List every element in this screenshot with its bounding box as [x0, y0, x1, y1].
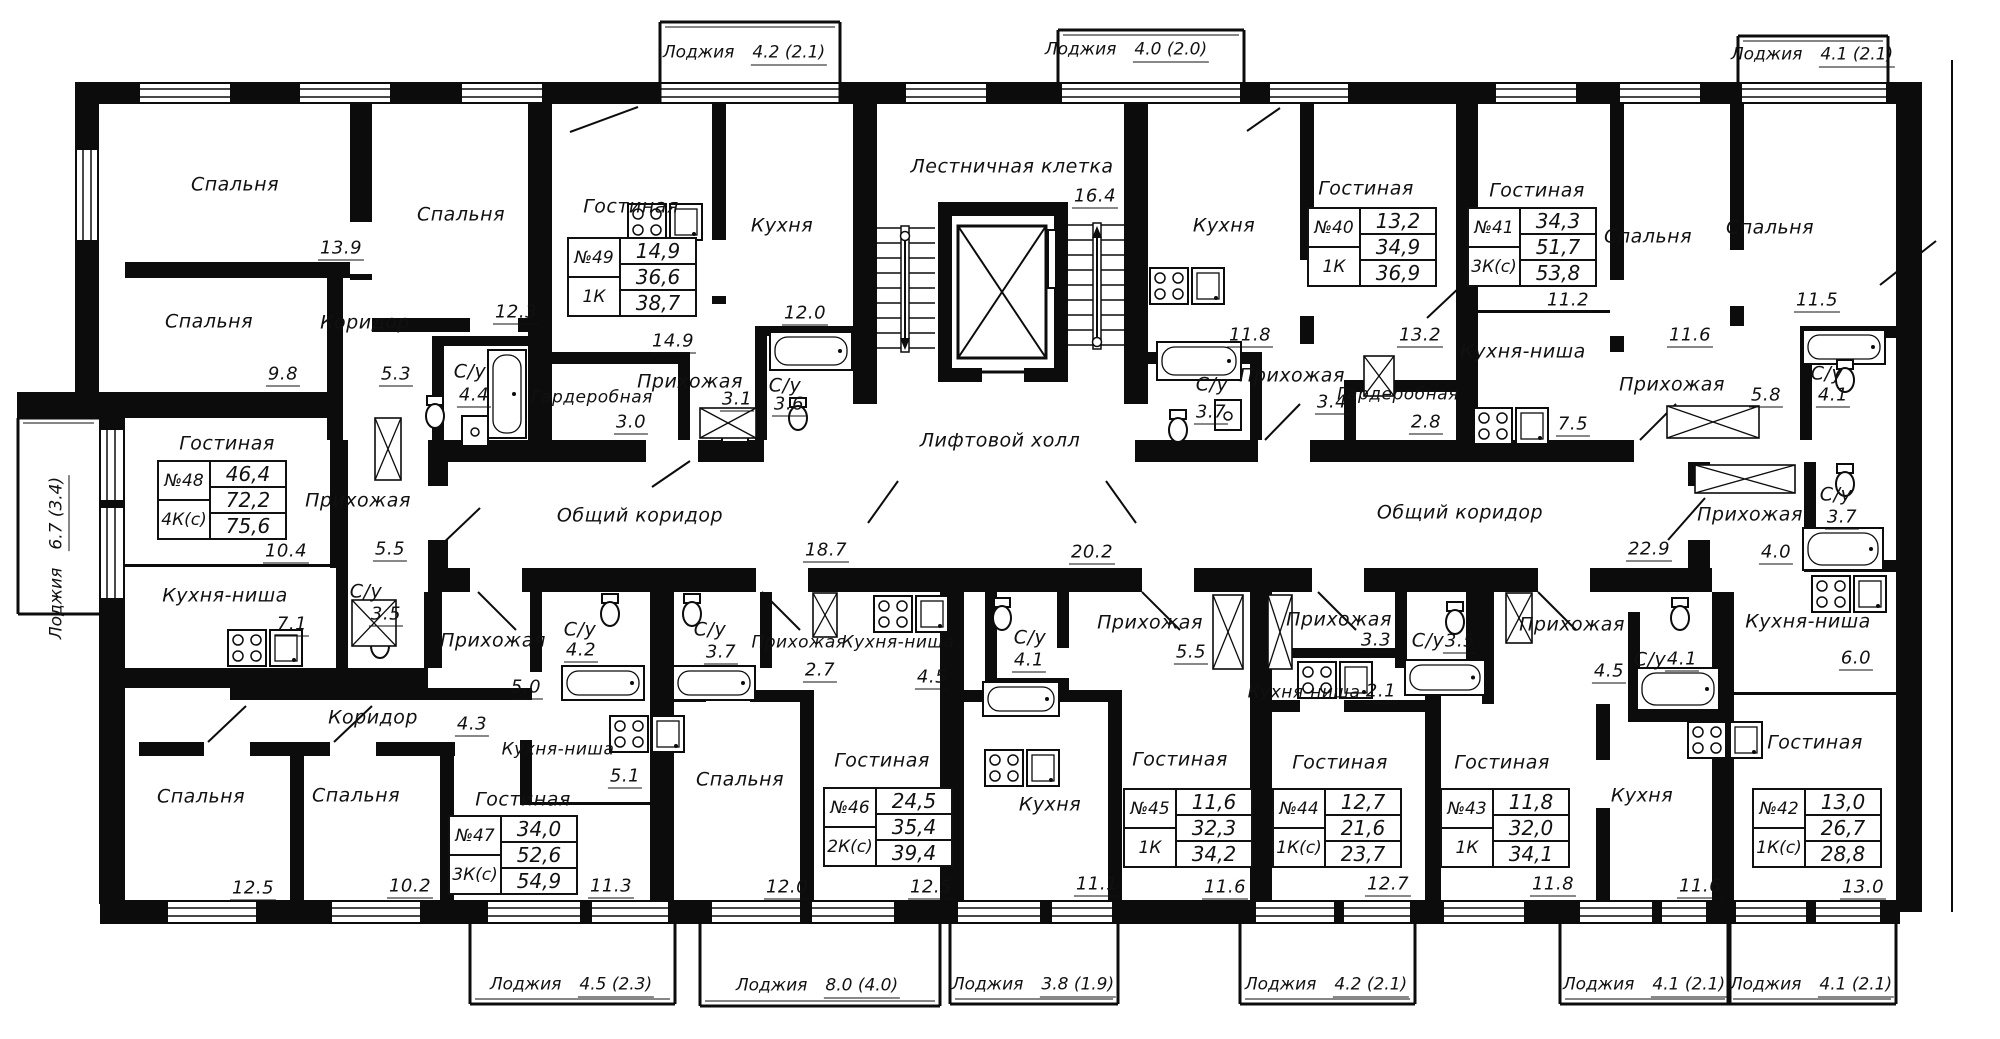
living-area: 34,0 [502, 817, 576, 843]
room-area: 13.9 [318, 240, 364, 261]
apartment-type: 4К(с) [159, 501, 209, 538]
room-area: 7.1 [275, 616, 309, 637]
room-area: 13.0 [1840, 879, 1886, 900]
apartment-spec-table: №413К(с)34,351,753,8 [1467, 207, 1597, 287]
room-label: Кухня-ниша [162, 587, 288, 606]
loggia-name: Лоджия [736, 976, 808, 996]
room-label: Спальня [696, 771, 784, 790]
room-area: 11.6 [1202, 879, 1248, 900]
apartment-number: №46 [825, 789, 875, 828]
room-area: 3.3 [1359, 632, 1393, 653]
loggia-label: Лоджия4.1 (2.1) [1730, 975, 1894, 998]
total-area-with-loggia: 36,9 [1361, 261, 1435, 285]
loggia-area: 8.0 (4.0) [823, 976, 900, 999]
room-label: Прихожая [1697, 506, 1803, 525]
room-area: 4.4 [457, 387, 491, 408]
room-label: Лестничная клетка [910, 158, 1113, 177]
living-area: 34,3 [1521, 209, 1595, 235]
room-area: 11.8 [1530, 876, 1576, 897]
room-area: 5.5 [373, 541, 407, 562]
apartment-type: 1К [1125, 829, 1175, 866]
total-area: 32,0 [1494, 816, 1568, 842]
room-area: 12.5 [908, 879, 954, 900]
living-area: 46,4 [211, 462, 285, 488]
room-label: Коридор [328, 709, 418, 728]
room-area: 4.3 [455, 716, 489, 737]
loggia-area: 4.0 (2.0) [1132, 40, 1209, 63]
room-label: Общий коридор [557, 507, 723, 526]
room-area: 4.5 [915, 669, 949, 690]
loggia-label: Лоджия8.0 (4.0) [736, 976, 900, 999]
loggia-area: 4.2 (2.1) [1332, 975, 1409, 998]
total-area-with-loggia: 28,8 [1806, 842, 1880, 866]
total-area-with-loggia: 38,7 [621, 291, 695, 315]
room-label: Спальня [157, 788, 245, 807]
apartment-number: №48 [159, 462, 209, 501]
room-area: 4.1 [1665, 651, 1699, 672]
loggia-area: 4.2 (2.1) [750, 43, 827, 66]
room-area: 11.1 [1074, 876, 1120, 897]
room-area: 4.1 [1816, 387, 1850, 408]
room-label: С/у [1811, 365, 1843, 384]
apartment-type: 1К [569, 278, 619, 315]
apartment-number: №41 [1469, 209, 1519, 248]
room-area: 4.2 [564, 642, 598, 663]
apartment-spec-table: №491К14,936,638,7 [567, 237, 697, 317]
room-label: Кухня-ниша [502, 742, 615, 759]
room-area: 16.4 [1072, 188, 1118, 209]
room-label: Гостиная [834, 752, 930, 771]
room-label: Гостиная [1318, 180, 1414, 199]
living-area: 11,8 [1494, 790, 1568, 816]
total-area-with-loggia: 39,4 [877, 841, 951, 865]
room-area: 9.8 [266, 366, 300, 387]
room-label: Кухня [1611, 787, 1673, 806]
living-area: 14,9 [621, 239, 695, 265]
room-area: 10.4 [263, 543, 309, 564]
room-area: 11.6 [1667, 327, 1713, 348]
total-area: 35,4 [877, 815, 951, 841]
total-area: 51,7 [1521, 235, 1595, 261]
room-area: 5.0 [509, 679, 543, 700]
room-area: 3.7 [1194, 404, 1228, 425]
room-area: 12.0 [782, 305, 828, 326]
room-area: 12.5 [230, 880, 276, 901]
room-area: 5.3 [379, 366, 413, 387]
room-area: 3.7 [704, 644, 738, 665]
room-area: 4.0 [1759, 544, 1793, 565]
room-label: Прихожая [1519, 616, 1625, 635]
loggia-label: Лоджия6.7 (3.4) [47, 475, 70, 639]
room-label: Гостиная [583, 198, 679, 217]
room-area: 2.7 [803, 662, 837, 683]
loggia-name: Лоджия [1563, 975, 1635, 995]
room-label: Спальня [417, 206, 505, 225]
room-label: С/у [454, 363, 486, 382]
floor-plan: Лестничная клетка16.4Лифтовой холл20.2Об… [0, 0, 2000, 1039]
room-label: Лифтовой холл [920, 432, 1080, 451]
room-label: Кухня-ниша [1745, 613, 1871, 632]
room-label: С/у [1634, 651, 1666, 670]
room-area: 3.1 [720, 391, 754, 412]
total-area: 21,6 [1326, 816, 1400, 842]
loggia-area: 4.1 (2.1) [1818, 45, 1895, 68]
apartment-spec-table: №473К(с)34,052,654,9 [448, 815, 578, 895]
loggia-label: Лоджия4.2 (2.1) [663, 43, 827, 66]
room-label: Прихожая [440, 632, 546, 651]
room-area: 6.0 [1839, 650, 1873, 671]
room-label: Кухня-ниша [1460, 343, 1586, 362]
room-area: 13.2 [1397, 327, 1443, 348]
apartment-spec-table: №462К(с)24,535,439,4 [823, 787, 953, 867]
apartment-number: №45 [1125, 790, 1175, 829]
room-label: Спальня [1604, 228, 1692, 247]
loggia-name: Лоджия [1245, 975, 1317, 995]
loggia-name: Лоджия [47, 568, 67, 640]
loggia-name: Лоджия [490, 975, 562, 995]
room-area: 12.3 [493, 304, 539, 325]
room-label: Гостиная [1489, 182, 1585, 201]
room-label: Гостиная [1454, 754, 1550, 773]
total-area-with-loggia: 54,9 [502, 869, 576, 893]
room-area: 5.1 [608, 768, 642, 789]
room-label: Прихожая [1286, 611, 1392, 630]
room-area: 12.0 [764, 879, 810, 900]
room-area: 10.2 [387, 878, 433, 899]
room-label: Коридор [320, 314, 410, 333]
room-label: С/у [350, 583, 382, 602]
room-area: 12.7 [1365, 876, 1411, 897]
loggia-name: Лоджия [663, 43, 735, 63]
total-area-with-loggia: 53,8 [1521, 261, 1595, 285]
room-label: С/у [694, 621, 726, 640]
room-area: 3.5 [1443, 633, 1477, 654]
room-area: 11.5 [1794, 292, 1840, 313]
total-area: 32,3 [1177, 816, 1251, 842]
apartment-type: 2К(с) [825, 828, 875, 865]
loggia-name: Лоджия [1730, 975, 1802, 995]
room-label: С/у [1014, 629, 1046, 648]
room-label: Прихожая [305, 492, 411, 511]
loggia-name: Лоджия [1731, 45, 1803, 65]
room-label: Гостиная [179, 435, 275, 454]
apartment-number: №42 [1754, 790, 1804, 829]
elevator [958, 226, 1056, 372]
loggia-label: Лоджия4.2 (2.1) [1245, 975, 1409, 998]
room-label: Общий коридор [1377, 504, 1543, 523]
room-area: 3.6 [772, 396, 806, 417]
total-area-with-loggia: 34,1 [1494, 842, 1568, 866]
room-label: С/у [564, 621, 596, 640]
loggia-label: Лоджия4.1 (2.1) [1563, 975, 1727, 998]
room-area: 5.8 [1749, 387, 1783, 408]
room-area: 4.1 [1012, 652, 1046, 673]
room-area: 22.9 [1626, 541, 1672, 562]
room-area: 11.6 [1677, 878, 1723, 899]
room-label: Гостиная [475, 791, 571, 810]
room-area: 3.0 [614, 414, 648, 435]
living-area: 11,6 [1177, 790, 1251, 816]
living-area: 24,5 [877, 789, 951, 815]
total-area: 26,7 [1806, 816, 1880, 842]
room-label: Кухня [751, 217, 813, 236]
apartment-spec-table: №451К11,632,334,2 [1123, 788, 1253, 868]
total-area-with-loggia: 34,2 [1177, 842, 1251, 866]
room-label: Гостиная [1132, 751, 1228, 770]
room-area: 18.7 [803, 542, 849, 563]
apartment-type: 1К(с) [1754, 829, 1804, 866]
loggia-label: Лоджия4.5 (2.3) [490, 975, 654, 998]
loggia-area: 3.8 (1.9) [1039, 975, 1116, 998]
apartment-type: 3К(с) [1469, 248, 1519, 285]
loggia-label: Лоджия4.0 (2.0) [1045, 40, 1209, 63]
room-label: Спальня [312, 787, 400, 806]
room-label: Кухня-ниша [842, 635, 955, 652]
room-area: 2.8 [1409, 414, 1443, 435]
total-area-with-loggia: 75,6 [211, 514, 285, 538]
loggia-area: 6.7 (3.4) [47, 475, 70, 552]
room-area: 11.8 [1227, 327, 1273, 348]
room-area: 11.3 [588, 878, 634, 899]
apartment-spec-table: №421К(с)13,026,728,8 [1752, 788, 1882, 868]
room-label: Гардеробная [531, 390, 653, 407]
room-area: 3.5 [369, 606, 403, 627]
apartment-type: 3К(с) [450, 856, 500, 893]
apartment-spec-table: №401К13,234,936,9 [1307, 207, 1437, 287]
apartment-number: №47 [450, 817, 500, 856]
room-label: Кухня [1193, 217, 1255, 236]
apartment-spec-table: №441К(с)12,721,623,7 [1272, 788, 1402, 868]
room-area: 2.1 [1364, 683, 1398, 704]
apartment-number: №43 [1442, 790, 1492, 829]
room-label: Прихожая [1097, 614, 1203, 633]
room-label: Прихожая [751, 635, 846, 652]
loggia-area: 4.1 (2.1) [1817, 975, 1894, 998]
apartment-type: 1К [1309, 248, 1359, 285]
loggia-name: Лоджия [1045, 40, 1117, 60]
apartment-type: 1К [1442, 829, 1492, 866]
apartment-type: 1К(с) [1274, 829, 1324, 866]
room-area: 3.7 [1825, 509, 1859, 530]
room-label: Гостиная [1292, 754, 1388, 773]
room-label: С/у [1196, 376, 1228, 395]
room-label: С/у [1412, 632, 1444, 651]
room-label: Гостиная [1767, 734, 1863, 753]
room-label: Гардеробная [1337, 387, 1459, 404]
living-area: 13,2 [1361, 209, 1435, 235]
room-area: 4.5 [1592, 663, 1626, 684]
apartment-spec-table: №431К11,832,034,1 [1440, 788, 1570, 868]
room-area: 14.9 [650, 333, 696, 354]
loggia-area: 4.1 (2.1) [1650, 975, 1727, 998]
loggia-label: Лоджия3.8 (1.9) [952, 975, 1116, 998]
total-area: 34,9 [1361, 235, 1435, 261]
total-area: 52,6 [502, 843, 576, 869]
room-area: 20.2 [1069, 544, 1115, 565]
room-label: С/у [1820, 486, 1852, 505]
room-area: 7.5 [1556, 416, 1590, 437]
living-area: 13,0 [1806, 790, 1880, 816]
room-label: Спальня [165, 313, 253, 332]
room-label: Кухня [1019, 796, 1081, 815]
apartment-number: №40 [1309, 209, 1359, 248]
loggia-label: Лоджия4.1 (2.1) [1731, 45, 1895, 68]
apartment-number: №49 [569, 239, 619, 278]
room-label: Прихожая [1619, 376, 1725, 395]
apartment-number: №44 [1274, 790, 1324, 829]
loggia-name: Лоджия [952, 975, 1024, 995]
room-area: 11.2 [1545, 292, 1591, 313]
room-label: Спальня [1726, 219, 1814, 238]
apartment-spec-table: №484К(с)46,472,275,6 [157, 460, 287, 540]
living-area: 12,7 [1326, 790, 1400, 816]
total-area-with-loggia: 23,7 [1326, 842, 1400, 866]
total-area: 72,2 [211, 488, 285, 514]
loggia-area: 4.5 (2.3) [577, 975, 654, 998]
room-area: 5.5 [1174, 644, 1208, 665]
room-label: Спальня [191, 176, 279, 195]
room-label: Прихожая [1239, 367, 1345, 386]
room-label: Кухня-ниша [1248, 685, 1361, 702]
total-area: 36,6 [621, 265, 695, 291]
